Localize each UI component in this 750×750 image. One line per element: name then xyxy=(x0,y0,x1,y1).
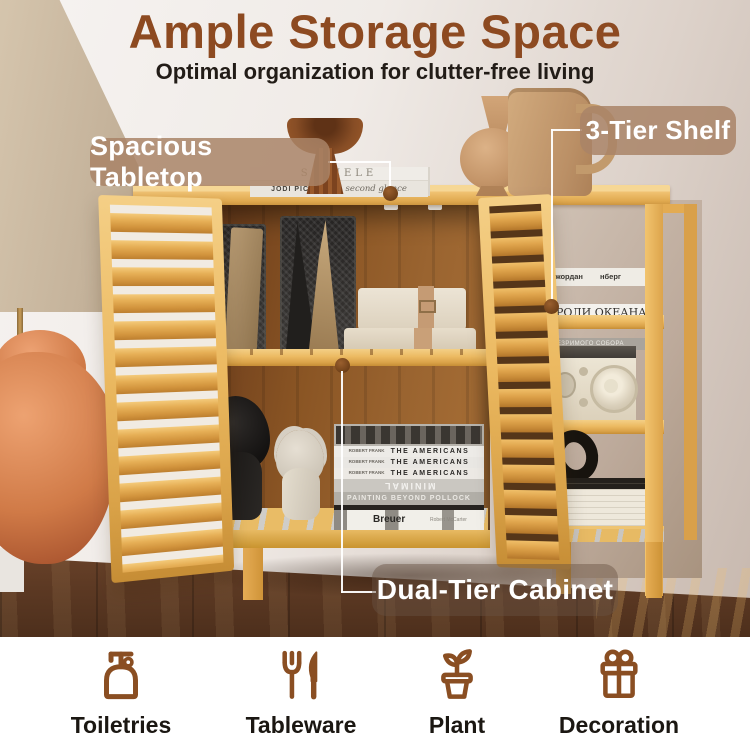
callout-label: Dual-Tier Cabinet xyxy=(377,574,613,606)
radio-knob xyxy=(579,367,588,376)
book-breuer: Breuer Robert McCarter xyxy=(334,505,484,530)
leader-line xyxy=(341,371,343,593)
callout-dot xyxy=(383,186,398,201)
shelf-front-post xyxy=(645,204,663,596)
book-title: THE AMERICANS xyxy=(391,448,470,455)
feature-label: Tableware xyxy=(246,712,357,739)
book-spine: ROBERT FRANK THE AMERICANS xyxy=(334,457,484,468)
leader-line xyxy=(551,129,553,301)
book-title: THE AMERICANS xyxy=(391,459,470,466)
potted-plant-icon xyxy=(428,645,486,703)
book-title: THE AMERICANS xyxy=(391,470,470,477)
book-title-fragment: нберг xyxy=(600,273,621,281)
door-slats xyxy=(489,204,559,560)
callout-label: 3-Tier Shelf xyxy=(586,115,731,146)
leader-line xyxy=(328,161,391,163)
book-spine: PAINTING BEYOND POLLOCK xyxy=(334,492,484,505)
book-author: Robert McCarter xyxy=(430,518,467,523)
book-author: ROBERT FRANK xyxy=(349,460,385,465)
white-bust-body xyxy=(282,468,320,520)
product-infographic: ROBERT FRANK THE AMERICANS ROBERT FRANK … xyxy=(0,0,750,750)
callout-shelf: 3-Tier Shelf xyxy=(580,106,736,155)
feature-label: Decoration xyxy=(559,712,679,739)
feature-tableware: Tableware xyxy=(216,645,386,739)
shelf-leg xyxy=(646,542,662,598)
gift-box-icon xyxy=(590,645,648,703)
soap-dispenser-icon xyxy=(92,645,150,703)
book-author: ROBERT FRANK xyxy=(349,449,385,454)
page-subtitle: Optimal organization for clutter-free li… xyxy=(0,59,750,85)
book-title: Breuer xyxy=(373,515,405,525)
book-title: MINIMAL xyxy=(383,481,436,490)
callout-dot xyxy=(544,299,559,314)
feature-strip: Toiletries Tableware Plant xyxy=(0,637,750,750)
cabinet-leg xyxy=(243,548,263,600)
feature-decoration: Decoration xyxy=(534,645,704,739)
shelf-rear-post xyxy=(684,204,697,540)
feature-toiletries: Toiletries xyxy=(36,645,206,739)
callout-tabletop: Spacious Tabletop xyxy=(90,138,330,186)
callout-cabinet: Dual-Tier Cabinet xyxy=(372,564,618,616)
feature-label: Plant xyxy=(429,712,485,739)
book-spine-upside-down: MINIMAL xyxy=(334,479,484,492)
feature-label: Toiletries xyxy=(71,712,172,739)
strap-buckle xyxy=(419,300,436,313)
rolled-papers xyxy=(225,227,263,351)
callout-label: Spacious Tabletop xyxy=(90,131,330,193)
fork-knife-icon xyxy=(272,645,330,703)
leader-line xyxy=(551,129,582,131)
terracotta-vase xyxy=(0,352,118,564)
page-title: Ample Storage Space xyxy=(0,4,750,59)
book-top-photo-cover xyxy=(334,424,484,446)
radio-dial-knob xyxy=(604,379,618,393)
book-stack: ROBERT FRANK THE AMERICANS ROBERT FRANK … xyxy=(334,424,484,530)
book-title: PAINTING BEYOND POLLOCK xyxy=(347,495,471,502)
storage-box-upper xyxy=(358,288,466,330)
leader-line xyxy=(341,591,376,593)
book-spine: ROBERT FRANK THE AMERICANS xyxy=(334,468,484,479)
product-photo: ROBERT FRANK THE AMERICANS ROBERT FRANK … xyxy=(0,0,750,637)
door-slats xyxy=(110,205,224,573)
radio-knob xyxy=(579,398,588,407)
book-spine: ROBERT FRANK THE AMERICANS xyxy=(334,446,484,457)
book-author: ROBERT FRANK xyxy=(349,471,385,476)
feature-plant: Plant xyxy=(372,645,542,739)
left-louvered-door xyxy=(98,195,234,583)
